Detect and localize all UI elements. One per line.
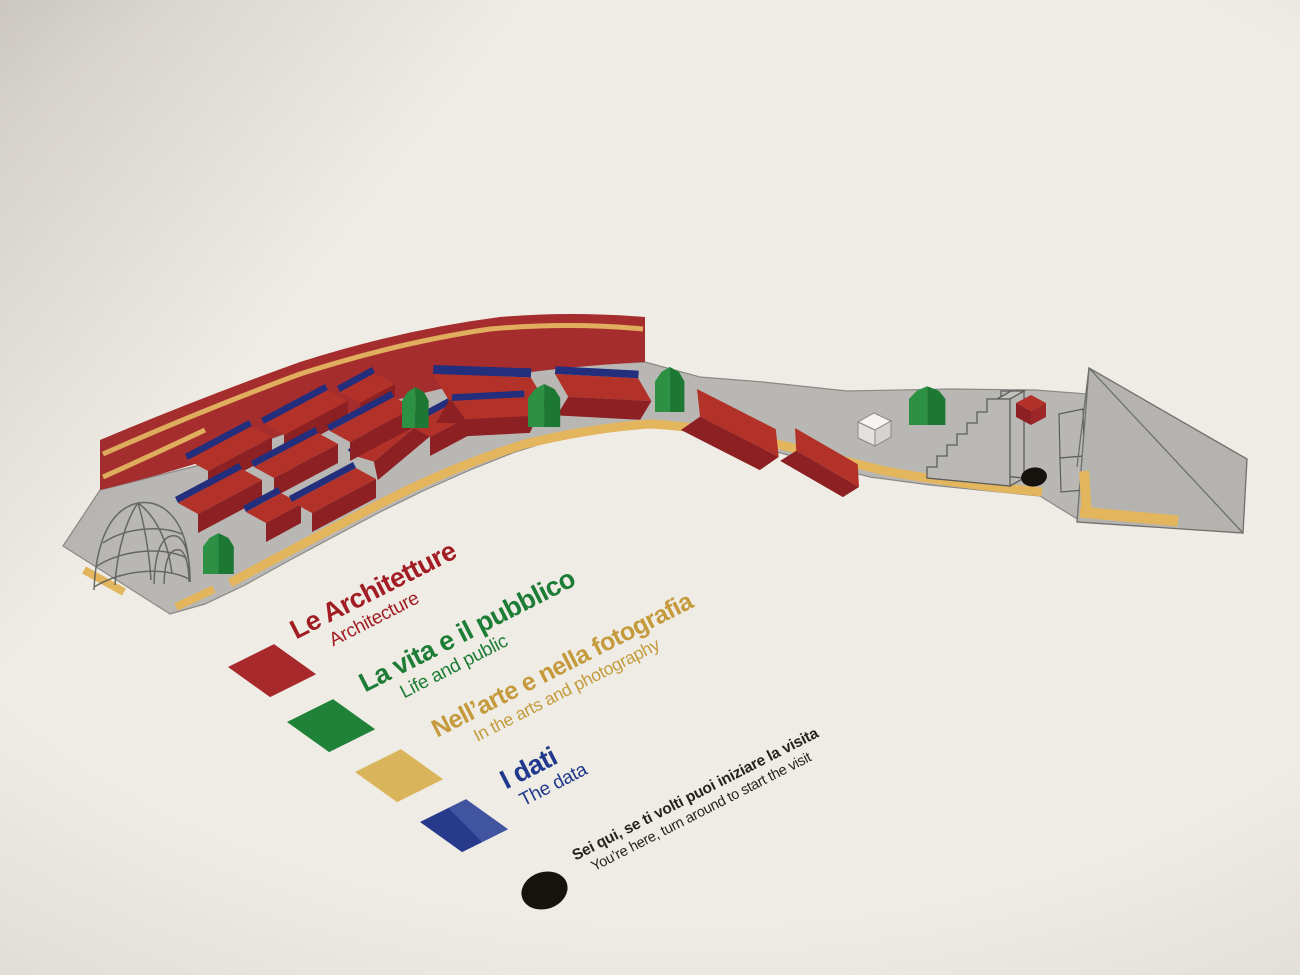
panel-photo: Le Architetture Architecture La vita e i… — [0, 0, 1300, 975]
ramp-wedge — [1077, 368, 1247, 533]
